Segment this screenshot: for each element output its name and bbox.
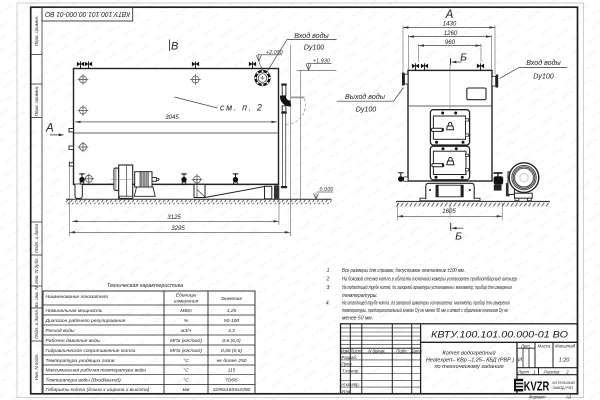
svg-text:Перв. примен.: Перв. примен. xyxy=(34,16,39,47)
svg-text:Рабочее давление воды: Рабочее давление воды xyxy=(46,338,101,344)
svg-text:1430: 1430 xyxy=(443,21,457,28)
svg-text:°С: °С xyxy=(183,358,189,364)
svg-text:Изм.: Изм. xyxy=(341,348,350,353)
svg-text:Лист: Лист xyxy=(349,348,361,353)
svg-text:Н.контр.: Н.контр. xyxy=(342,382,360,387)
svg-text:Heatexpert– КВр –1,25– КБД (РВ: Heatexpert– КВр –1,25– КБД (РВР ) xyxy=(426,357,514,363)
svg-text:3125: 3125 xyxy=(167,214,181,221)
svg-text:Котел водогрейный: Котел водогрейный xyxy=(442,350,495,357)
svg-text:мм: мм xyxy=(183,388,190,393)
svg-text:Dy100: Dy100 xyxy=(304,43,325,51)
svg-text:Единицы: Единицы xyxy=(176,293,197,299)
svg-text:Dy100: Dy100 xyxy=(533,73,554,81)
svg-text:Температура уходящих газов: Температура уходящих газов xyxy=(46,358,115,364)
svg-text:Диапазон рабочего регулировани: Диапазон рабочего регулирования xyxy=(45,318,126,324)
svg-text:На боковой стенке котла в обла: На боковой стенке котла в области топочн… xyxy=(342,275,517,282)
svg-text:Вход воды: Вход воды xyxy=(526,59,561,67)
svg-text:3295х1605х2050: 3295х1605х2050 xyxy=(213,387,251,393)
svg-text:измерения: измерения xyxy=(174,300,199,305)
svg-text:температуры, предохранительный: температуры, предохранительный клапан Dу… xyxy=(342,307,508,314)
svg-text:Dy100: Dy100 xyxy=(356,106,377,114)
svg-text:А: А xyxy=(445,9,454,21)
svg-text:КВТУ.100.101.00.000-01 ВО: КВТУ.100.101.00.000-01 ВО xyxy=(431,330,569,341)
svg-text:Инв. N подл.: Инв. N подл. xyxy=(34,354,39,381)
svg-text:Инв. N дубл.: Инв. N дубл. xyxy=(34,257,39,284)
svg-text:Вход воды: Вход воды xyxy=(294,32,329,40)
svg-text:Максимальная рабочая температу: Максимальная рабочая температура воды xyxy=(46,368,147,374)
svg-text:1,25: 1,25 xyxy=(227,308,237,314)
svg-text:Пров.: Пров. xyxy=(342,362,353,367)
svg-text:КВТУ.100.101.00.000-01 ВО: КВТУ.100.101.00.000-01 ВО xyxy=(45,10,130,19)
svg-text:0,6 (6,0): 0,6 (6,0) xyxy=(222,338,241,344)
svg-text:МВт: МВт xyxy=(180,308,191,314)
svg-text:Т.контр.: Т.контр. xyxy=(342,368,359,373)
svg-text:Гидравлическое сопротивление к: Гидравлическое сопротивление котла xyxy=(46,348,136,354)
svg-text:А3: А3 xyxy=(565,395,572,400)
svg-text:Разраб.: Разраб. xyxy=(342,355,358,360)
svg-text:Б: Б xyxy=(455,231,462,243)
svg-text:Подп. и дата: Подп. и дата xyxy=(34,224,39,253)
svg-text:Лист: Лист xyxy=(517,370,529,375)
svg-text:Подп. и дата: Подп. и дата xyxy=(34,310,39,339)
svg-text:Наименование показателя: Наименование показателя xyxy=(46,294,109,300)
svg-text:В: В xyxy=(171,41,178,53)
svg-text:1:20: 1:20 xyxy=(559,357,571,363)
svg-text:°С: °С xyxy=(183,377,189,383)
svg-text:по техническому заданию: по техническому заданию xyxy=(434,364,504,370)
svg-text:3: 3 xyxy=(327,285,330,291)
svg-text:см. п. 2: см. п. 2 xyxy=(220,103,264,113)
svg-text:Перв. примен.: Перв. примен. xyxy=(34,86,39,117)
svg-text:1605: 1605 xyxy=(442,208,456,215)
svg-text:Техническая характеристика: Техническая характеристика xyxy=(107,283,183,289)
svg-text:А: А xyxy=(45,123,54,135)
svg-text:Формат: Формат xyxy=(529,395,546,400)
svg-text:Температура воды (Вход/выход): Температура воды (Вход/выход) xyxy=(46,377,122,383)
svg-text:0,06 (0,6): 0,06 (0,6) xyxy=(221,348,242,354)
svg-text:4.: 4. xyxy=(326,301,330,307)
svg-text:Листов: Листов xyxy=(543,370,560,375)
svg-text:На отводящей трубе котла ,до з: На отводящей трубе котла ,до запорной ар… xyxy=(342,300,510,307)
svg-text:°С: °С xyxy=(183,368,189,374)
svg-text:Дата: Дата xyxy=(410,348,423,353)
svg-text:И: И xyxy=(518,358,522,364)
svg-text:KVZR: KVZR xyxy=(524,379,550,394)
svg-text:Номинальная мощность: Номинальная мощность xyxy=(46,308,104,314)
svg-text:50-100: 50-100 xyxy=(224,318,240,324)
svg-text:Все размеры для справок, допус: Все размеры для справок, допустимое откл… xyxy=(342,268,465,274)
svg-text:3045: 3045 xyxy=(165,114,179,121)
svg-text:4,3: 4,3 xyxy=(228,328,235,334)
svg-text:МПа (кгс/см2): МПа (кгс/см2) xyxy=(170,338,202,344)
svg-text:Расход воды: Расход воды xyxy=(46,328,75,334)
svg-text:960: 960 xyxy=(445,39,456,46)
svg-text:1260: 1260 xyxy=(444,30,458,37)
svg-text:Вз. инв. N: Вз. инв. N xyxy=(34,286,39,308)
svg-text:%: % xyxy=(184,318,189,324)
svg-text:Масштаб: Масштаб xyxy=(555,343,576,348)
svg-text:Лит.: Лит. xyxy=(520,343,531,348)
svg-text:КОТЕЛЬНЫЙ: КОТЕЛЬНЫЙ xyxy=(553,381,576,385)
svg-text:1: 1 xyxy=(327,268,330,274)
svg-text:Б: Б xyxy=(460,52,467,64)
svg-text:ЗАВОД РЭП: ЗАВОД РЭП xyxy=(553,386,574,390)
svg-text:менее 50 мм.: менее 50 мм. xyxy=(342,315,373,321)
svg-text:Значение: Значение xyxy=(221,296,243,302)
svg-text:Утв.: Утв. xyxy=(342,389,352,394)
svg-text:3295: 3295 xyxy=(171,225,185,232)
svg-text:не более 250: не более 250 xyxy=(217,358,247,364)
svg-text:2: 2 xyxy=(326,276,330,282)
svg-text:м3/ч: м3/ч xyxy=(181,328,191,334)
svg-text:Масса: Масса xyxy=(538,343,551,348)
svg-text:Выход воды: Выход воды xyxy=(345,93,386,101)
svg-text:Габариты котла (длина х ширина: Габариты котла (длина х ширина х высота) xyxy=(46,387,150,393)
svg-text:На подводящей трубе котла, д: На подводящей трубе котла, до запорной а… xyxy=(342,284,512,291)
svg-text:МПа (кгс/см2): МПа (кгс/см2) xyxy=(170,348,202,354)
svg-text:температуры.: температуры. xyxy=(342,293,378,299)
svg-text:Подп.: Подп. xyxy=(396,348,407,353)
svg-text:115: 115 xyxy=(228,368,236,374)
svg-text:70/95: 70/95 xyxy=(225,377,238,383)
svg-text:N докум.: N докум. xyxy=(368,348,385,353)
